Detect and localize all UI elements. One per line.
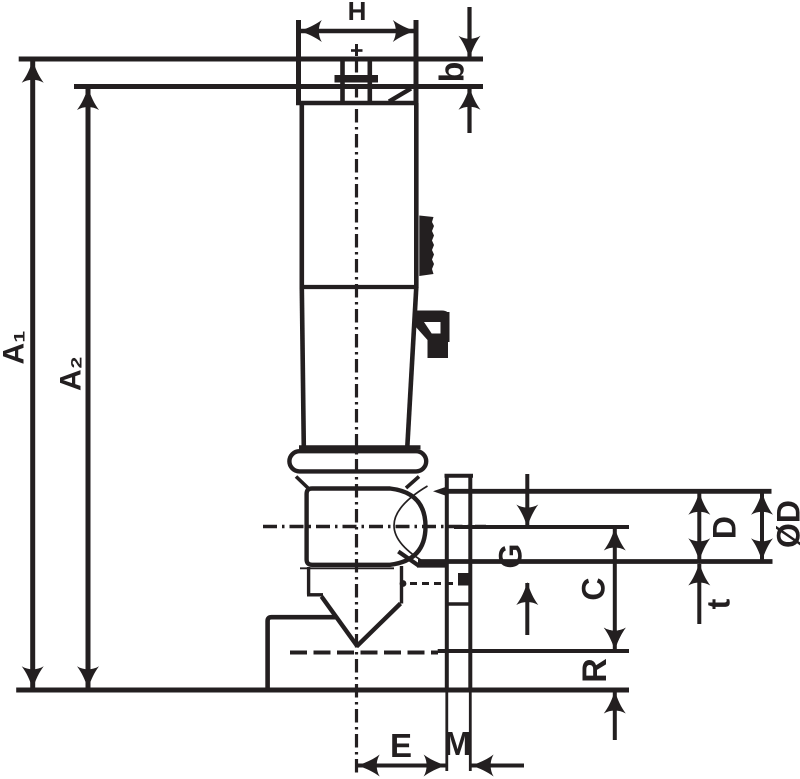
svg-text:R: R [576, 658, 614, 683]
svg-text:M: M [444, 725, 472, 762]
svg-text:C: C [576, 577, 612, 600]
svg-text:t: t [701, 598, 737, 609]
svg-text:D: D [707, 516, 743, 539]
svg-text:G: G [493, 544, 529, 569]
svg-text:b: b [434, 62, 472, 83]
svg-text:A₁: A₁ [0, 330, 31, 364]
svg-text:ØD: ØD [771, 500, 800, 548]
svg-text:E: E [390, 727, 412, 764]
svg-text:H: H [348, 0, 367, 26]
svg-text:A₂: A₂ [55, 356, 88, 391]
